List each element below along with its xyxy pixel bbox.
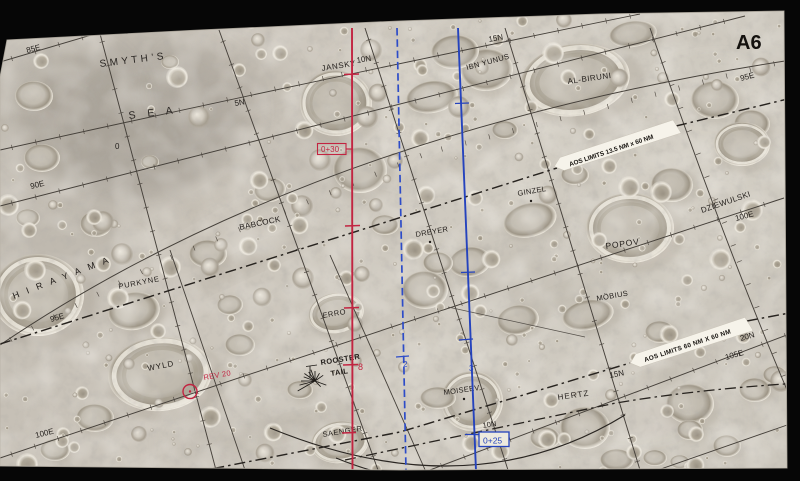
svg-text:0+25: 0+25 xyxy=(483,436,502,446)
svg-text:3: 3 xyxy=(469,364,474,373)
svg-text:0: 0 xyxy=(115,142,120,151)
svg-text:A6: A6 xyxy=(736,32,762,54)
svg-text:0+30: 0+30 xyxy=(321,145,340,154)
svg-text:8: 8 xyxy=(358,362,363,372)
svg-text:2: 2 xyxy=(403,360,408,369)
svg-text:5N: 5N xyxy=(234,97,246,108)
